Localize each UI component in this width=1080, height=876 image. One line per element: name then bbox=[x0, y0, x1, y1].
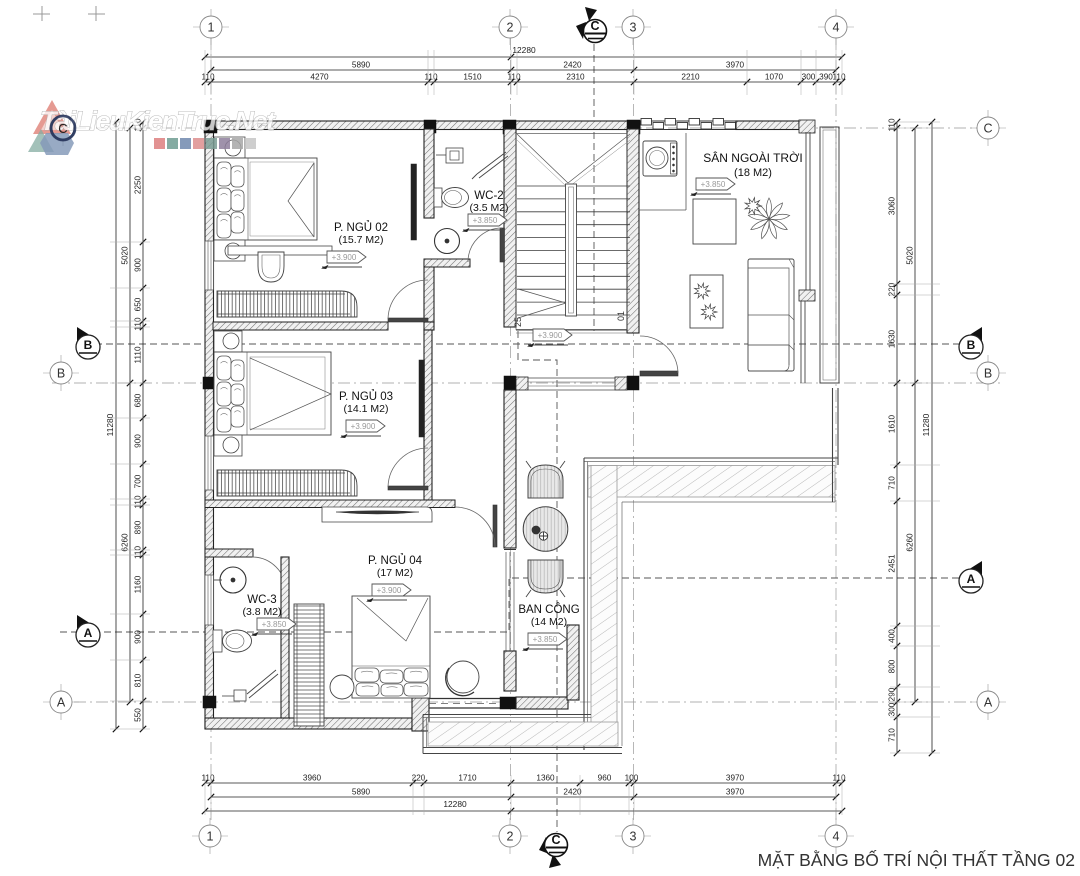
svg-text:1: 1 bbox=[207, 830, 214, 844]
svg-text:890: 890 bbox=[134, 520, 143, 534]
svg-text:710: 710 bbox=[888, 476, 897, 490]
svg-text:110: 110 bbox=[507, 73, 520, 82]
svg-text:3060: 3060 bbox=[888, 196, 897, 215]
svg-text:+3.850: +3.850 bbox=[262, 620, 287, 629]
svg-text:110: 110 bbox=[832, 774, 845, 783]
svg-text:SÂN NGOÀI TRỜI: SÂN NGOÀI TRỜI bbox=[703, 150, 802, 165]
svg-text:900: 900 bbox=[134, 434, 143, 448]
svg-text:900: 900 bbox=[134, 630, 143, 644]
svg-text:1070: 1070 bbox=[765, 73, 784, 82]
svg-text:2250: 2250 bbox=[134, 175, 143, 194]
svg-text:550: 550 bbox=[134, 708, 143, 722]
svg-text:+3.850: +3.850 bbox=[533, 635, 558, 644]
svg-text:A: A bbox=[967, 572, 976, 586]
svg-text:(14 M2): (14 M2) bbox=[531, 616, 567, 628]
svg-text:1510: 1510 bbox=[463, 73, 482, 82]
svg-text:+3.900: +3.900 bbox=[377, 586, 402, 595]
svg-text:290: 290 bbox=[888, 687, 897, 701]
svg-text:810: 810 bbox=[134, 673, 143, 687]
svg-text:P. NGỦ 03: P. NGỦ 03 bbox=[339, 390, 393, 403]
svg-text:B: B bbox=[84, 338, 93, 352]
svg-text:4270: 4270 bbox=[310, 73, 329, 82]
svg-text:900: 900 bbox=[134, 258, 143, 272]
svg-text:1630: 1630 bbox=[888, 329, 897, 348]
svg-text:110: 110 bbox=[134, 317, 143, 330]
svg-text:MẶT BẰNG BỐ TRÍ NỘI THẤT TẦNG: MẶT BẰNG BỐ TRÍ NỘI THẤT TẦNG 02 bbox=[758, 849, 1075, 870]
svg-text:2: 2 bbox=[507, 21, 514, 35]
svg-text:B: B bbox=[967, 338, 976, 352]
svg-text:(3.5 M2): (3.5 M2) bbox=[469, 202, 508, 214]
svg-text:100: 100 bbox=[625, 774, 639, 783]
svg-text:2210: 2210 bbox=[681, 73, 700, 82]
svg-text:1360: 1360 bbox=[536, 774, 555, 783]
svg-text:P. NGỦ 04: P. NGỦ 04 bbox=[368, 554, 423, 567]
svg-text:2451: 2451 bbox=[888, 554, 897, 573]
svg-text:390: 390 bbox=[819, 73, 833, 82]
svg-text:220: 220 bbox=[412, 774, 426, 783]
svg-text:2420: 2420 bbox=[563, 61, 582, 70]
svg-text:25: 25 bbox=[513, 317, 523, 327]
svg-text:5020: 5020 bbox=[906, 246, 915, 265]
svg-text:110: 110 bbox=[424, 73, 437, 82]
svg-text:A: A bbox=[984, 696, 993, 710]
svg-text:6260: 6260 bbox=[906, 533, 915, 552]
svg-text:3: 3 bbox=[630, 21, 637, 35]
svg-text:400: 400 bbox=[888, 629, 897, 643]
svg-text:11280: 11280 bbox=[105, 413, 115, 436]
svg-text:680: 680 bbox=[134, 393, 143, 407]
svg-text:(14.1 M2): (14.1 M2) bbox=[344, 403, 389, 415]
svg-text:5890: 5890 bbox=[352, 61, 371, 70]
svg-text:2: 2 bbox=[507, 830, 514, 844]
svg-text:P. NGỦ 02: P. NGỦ 02 bbox=[334, 221, 388, 234]
svg-text:01: 01 bbox=[616, 311, 626, 321]
svg-text:800: 800 bbox=[888, 659, 897, 673]
svg-text:5890: 5890 bbox=[352, 788, 371, 797]
svg-text:650: 650 bbox=[134, 297, 143, 311]
svg-text:+3.900: +3.900 bbox=[332, 253, 357, 262]
svg-text:(18 M2): (18 M2) bbox=[734, 167, 772, 179]
svg-text:C: C bbox=[58, 121, 67, 136]
svg-text:300: 300 bbox=[802, 73, 816, 82]
svg-text:5020: 5020 bbox=[121, 246, 130, 265]
svg-text:C: C bbox=[983, 122, 992, 136]
svg-text:+3.900: +3.900 bbox=[351, 422, 376, 431]
svg-text:1110: 1110 bbox=[134, 346, 143, 363]
svg-text:(15.7 M2): (15.7 M2) bbox=[339, 234, 384, 246]
svg-text:3970: 3970 bbox=[726, 788, 745, 797]
svg-text:110: 110 bbox=[134, 546, 143, 559]
svg-text:+3.850: +3.850 bbox=[701, 180, 726, 189]
svg-text:(3.8 M2): (3.8 M2) bbox=[242, 606, 281, 618]
svg-text:WC-3: WC-3 bbox=[247, 594, 276, 606]
svg-text:A: A bbox=[57, 696, 66, 710]
svg-text:1710: 1710 bbox=[458, 774, 477, 783]
svg-text:2420: 2420 bbox=[563, 788, 582, 797]
svg-text:4: 4 bbox=[833, 830, 840, 844]
svg-text:110: 110 bbox=[832, 73, 845, 82]
svg-text:1: 1 bbox=[208, 21, 215, 35]
svg-text:220: 220 bbox=[888, 282, 897, 296]
svg-text:11280: 11280 bbox=[921, 413, 931, 436]
svg-text:110: 110 bbox=[888, 118, 897, 131]
svg-text:B: B bbox=[984, 367, 992, 381]
svg-text:1610: 1610 bbox=[888, 414, 897, 433]
svg-text:C: C bbox=[551, 833, 560, 847]
svg-text:300: 300 bbox=[888, 702, 897, 716]
svg-text:3: 3 bbox=[630, 830, 637, 844]
svg-text:700: 700 bbox=[134, 474, 143, 488]
svg-text:110: 110 bbox=[201, 73, 214, 82]
svg-text:+3.900: +3.900 bbox=[538, 331, 563, 340]
svg-text:4: 4 bbox=[833, 21, 840, 35]
svg-text:BAN CÔNG: BAN CÔNG bbox=[518, 603, 579, 616]
svg-text:2310: 2310 bbox=[566, 73, 585, 82]
svg-text:B: B bbox=[57, 367, 65, 381]
svg-text:110: 110 bbox=[201, 774, 214, 783]
svg-text:710: 710 bbox=[888, 728, 897, 742]
svg-text:110: 110 bbox=[134, 495, 143, 508]
svg-text:1160: 1160 bbox=[134, 575, 143, 593]
svg-text:3970: 3970 bbox=[726, 61, 745, 70]
svg-text:C: C bbox=[590, 19, 599, 33]
svg-text:6260: 6260 bbox=[121, 533, 130, 552]
svg-text:12280: 12280 bbox=[512, 45, 536, 55]
svg-text:3970: 3970 bbox=[726, 774, 745, 783]
svg-text:A: A bbox=[84, 626, 93, 640]
svg-text:960: 960 bbox=[598, 774, 612, 783]
svg-text:+3.850: +3.850 bbox=[473, 216, 498, 225]
svg-text:12280: 12280 bbox=[443, 799, 467, 809]
svg-text:(17 M2): (17 M2) bbox=[377, 567, 413, 579]
svg-text:3960: 3960 bbox=[303, 774, 322, 783]
svg-text:WC-2: WC-2 bbox=[474, 190, 503, 202]
